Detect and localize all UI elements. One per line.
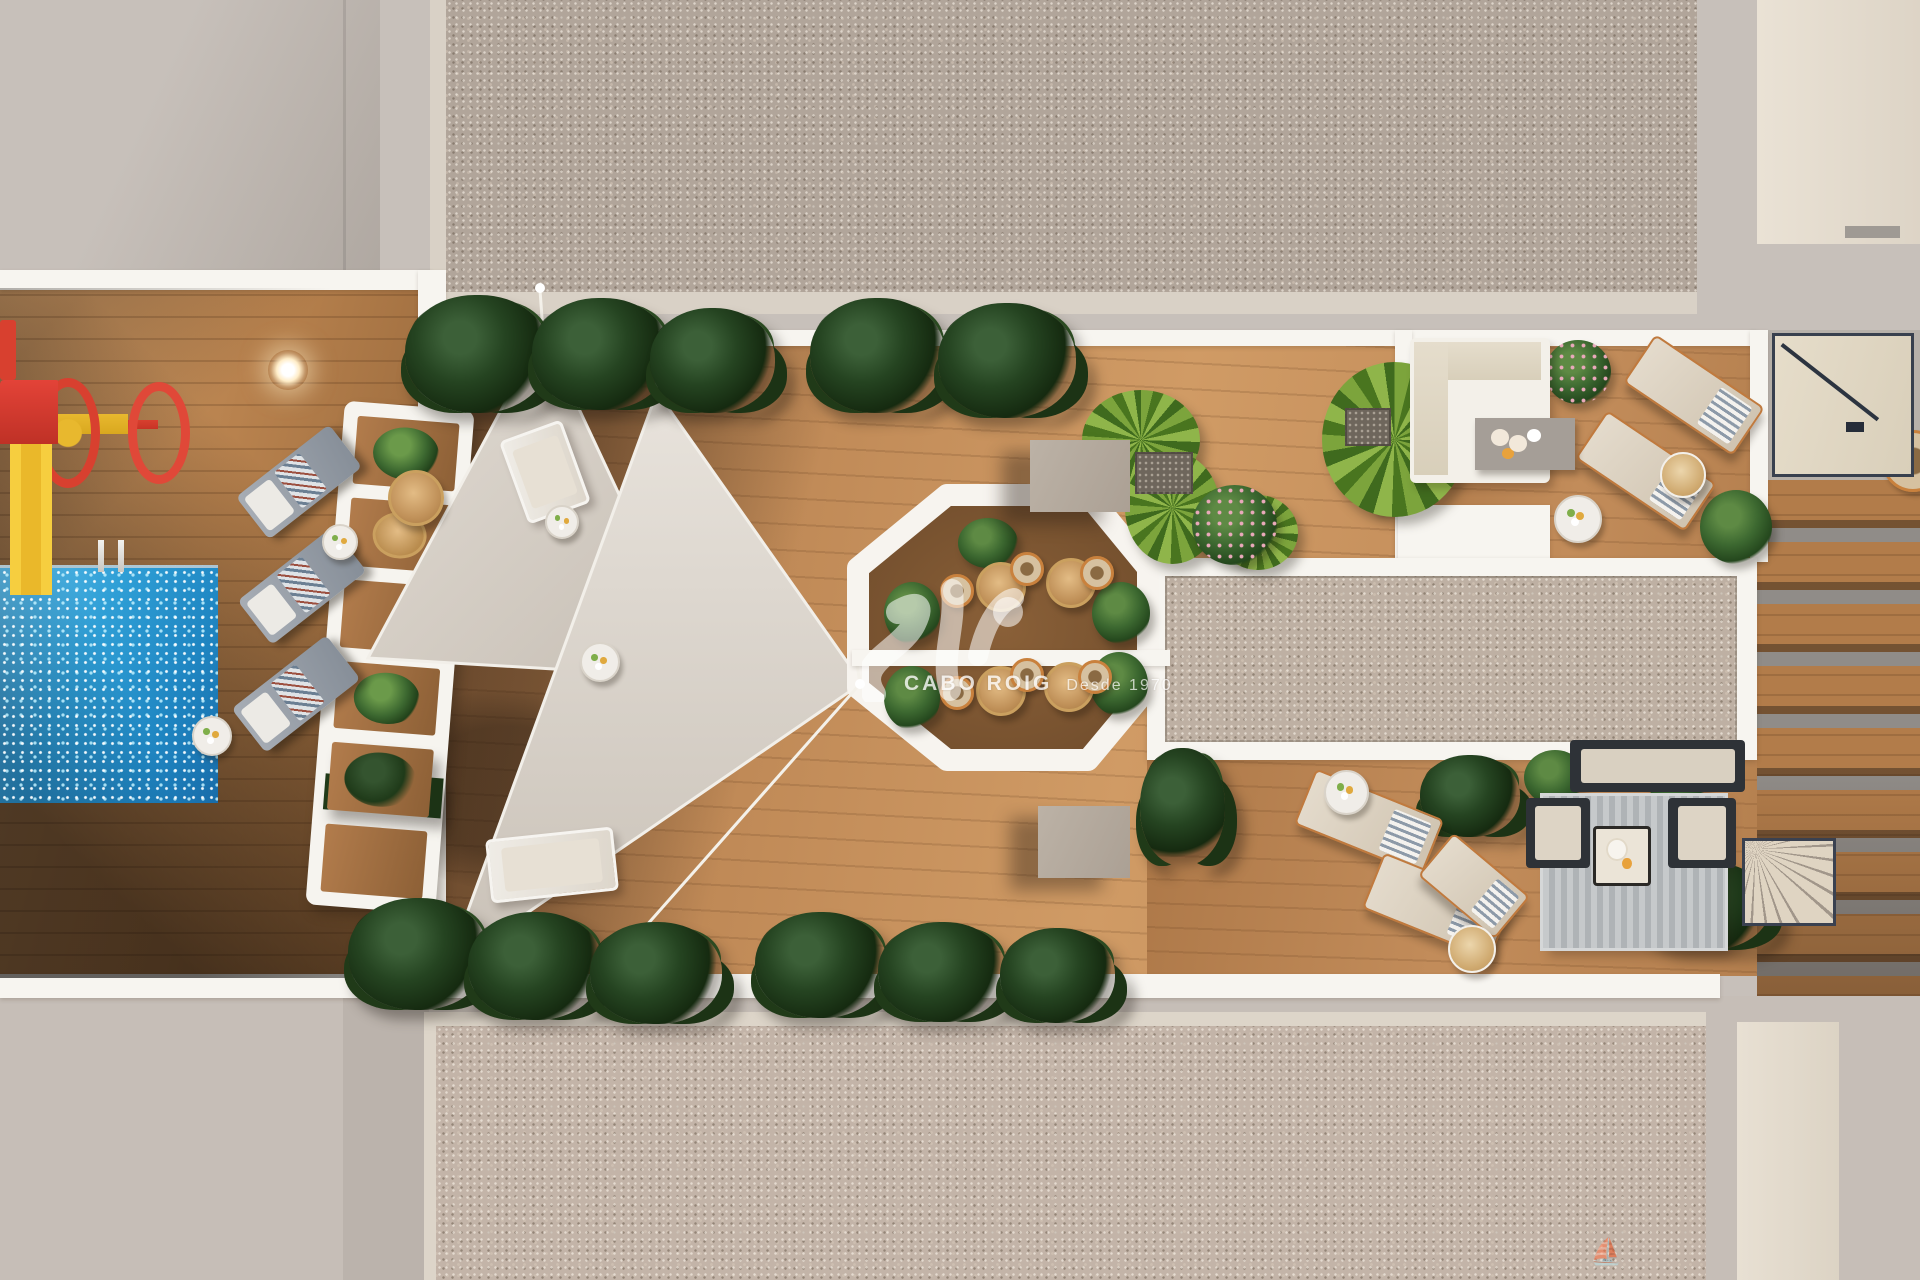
- bushG: [884, 666, 940, 730]
- chairO: [940, 574, 974, 608]
- sqT: [1038, 806, 1130, 878]
- plantD: [348, 898, 488, 1010]
- planter: [1345, 408, 1391, 446]
- plantD: [938, 303, 1076, 418]
- chairO: [1078, 660, 1112, 694]
- bushG: [1092, 582, 1150, 644]
- sofaN: [1570, 740, 1745, 792]
- bushG: [884, 582, 940, 644]
- sqT: [1030, 440, 1130, 512]
- tableS: [192, 716, 232, 756]
- ladder: [92, 540, 132, 572]
- chairO: [1010, 552, 1044, 586]
- plantD: [1000, 928, 1115, 1023]
- lamp: [268, 350, 308, 390]
- plantD: [468, 912, 603, 1020]
- tableS: [580, 642, 620, 682]
- tableS: [1554, 495, 1602, 543]
- tableS: [1324, 770, 1369, 815]
- armN: [1668, 798, 1736, 868]
- tableS: [545, 505, 579, 539]
- redbit: [0, 320, 16, 380]
- fan: [1742, 838, 1836, 926]
- tableG: [1475, 418, 1575, 470]
- sail-anchor: [855, 679, 865, 689]
- sail-anchor: [535, 283, 545, 293]
- tableW: [1448, 925, 1496, 973]
- plantD: [405, 295, 550, 413]
- slide: [0, 380, 60, 595]
- tableR: [388, 470, 444, 526]
- bushP: [1192, 485, 1277, 565]
- armN: [1526, 798, 1590, 868]
- plantD: [1140, 748, 1225, 866]
- loungerW: [485, 826, 619, 903]
- bushG: [958, 518, 1018, 568]
- plantD: [878, 922, 1006, 1022]
- stair: [1775, 336, 1911, 474]
- plantD: [810, 298, 945, 413]
- tabC: [1593, 826, 1651, 886]
- plantD: [590, 922, 722, 1024]
- plantD: [755, 912, 887, 1018]
- tableW: [1660, 452, 1706, 498]
- aerial-render: CABO ROIGDesde 1970: [0, 0, 1920, 1280]
- shade-sails-and-gazebo: [0, 0, 1920, 1280]
- planter: [1135, 452, 1193, 494]
- bushG: [1700, 490, 1772, 564]
- bushP: [1545, 340, 1611, 404]
- chairO: [940, 676, 974, 710]
- chairO: [1080, 556, 1114, 590]
- plantD: [650, 308, 775, 413]
- tableS: [322, 524, 358, 560]
- boat: [1590, 1236, 1612, 1266]
- chairO: [1010, 658, 1044, 692]
